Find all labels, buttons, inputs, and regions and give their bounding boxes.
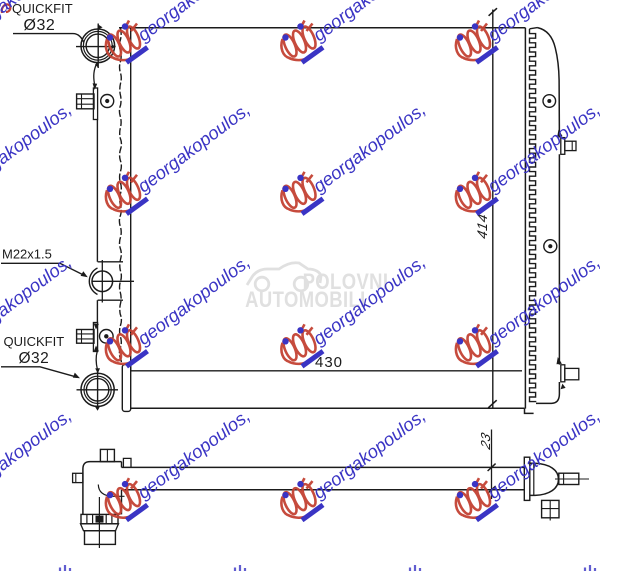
svg-text:georgakopoulos,: georgakopoulos,: [309, 405, 430, 503]
svg-text:georgakopoulos,: georgakopoulos,: [0, 98, 75, 196]
svg-text:georgakopoulos,: georgakopoulos,: [309, 0, 430, 45]
svg-text:georgakopoulos,: georgakopoulos,: [133, 251, 254, 349]
svg-text:georgakopoulos,: georgakopoulos,: [133, 0, 254, 45]
svg-text:georgakopoulos,: georgakopoulos,: [133, 98, 254, 196]
svg-text:georgakopoulos,: georgakopoulos,: [483, 98, 604, 196]
svg-text:414: 414: [474, 212, 490, 240]
svg-text:georgakopoulos,: georgakopoulos,: [0, 405, 75, 503]
svg-text:georgakopoulos,: georgakopoulos,: [483, 0, 604, 45]
svg-text:georgakopoulos,: georgakopoulos,: [483, 251, 604, 349]
svg-text:Ø32: Ø32: [19, 350, 50, 367]
svg-text:QUICKFIT: QUICKFIT: [4, 334, 65, 349]
svg-text:georgakopoulos,: georgakopoulos,: [483, 405, 604, 503]
svg-text:23: 23: [478, 430, 493, 452]
svg-text:M22x1.5: M22x1.5: [2, 247, 52, 262]
svg-text:georgakopoulos,: georgakopoulos,: [133, 405, 254, 503]
svg-text:georgakopoulos,: georgakopoulos,: [309, 98, 430, 196]
svg-text:Ø32: Ø32: [24, 17, 56, 34]
